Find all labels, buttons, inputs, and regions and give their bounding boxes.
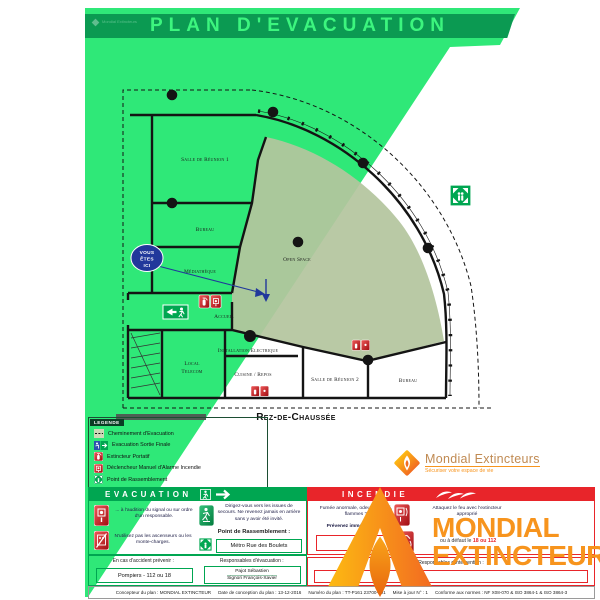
you-are-here-line1: VOUS	[140, 250, 155, 256]
footer-date: Date de conception du plan : 13-12-2016	[218, 590, 301, 595]
brand-logo: Mondial Extincteurs Sécuriser votre espa…	[392, 448, 540, 478]
extinguisher-icon	[94, 452, 103, 461]
room-label-cuisine-repos: Cuisine / Repos	[234, 372, 271, 378]
instruction-lifts: N'utilisez pas les ascenseurs ou les mon…	[111, 534, 195, 547]
assembly-point-icon	[199, 538, 212, 551]
room-label-salle-reunion-2: Salle de Réunion 2	[311, 377, 359, 383]
extinguisher-alarm-icons-accueil	[199, 295, 221, 308]
brand-flame-diamond-icon	[392, 448, 422, 478]
legend-item-rassemblement: Point de Rassemblement	[94, 475, 264, 484]
evacuation-panel: EVACUATION ... à l'audition du signal ou…	[88, 487, 307, 555]
legend-item-sortie-finale: Evacuation Sortie Finale	[94, 441, 264, 450]
stairs	[131, 333, 160, 395]
watermark-brand-text: MONDIAL EXTINCTEUR	[432, 514, 600, 570]
room-label-accueil: Accueil	[214, 314, 234, 320]
room-label-bureau-gauche: Bureau	[196, 227, 215, 233]
room-label-local-telecom-2: Telecom	[181, 369, 202, 375]
assembly-point-icon	[94, 475, 103, 484]
watermark-line2: EXTINCTEUR	[432, 542, 600, 570]
evacuation-responsables: Responsables d'évacuation : Pajot Sébast…	[198, 556, 307, 585]
legend-item-extincteur: Extincteur Portatif	[94, 452, 264, 461]
room-label-bureau-droit: Bureau	[399, 378, 418, 384]
exit-sign-icon	[163, 305, 188, 319]
dashed-path-icon	[94, 429, 104, 438]
evacuation-title: EVACUATION	[89, 490, 192, 499]
no-elevator-icon	[94, 531, 109, 550]
assembly-point-icon	[450, 185, 471, 206]
room-label-installation-electrique: Installation Electrique	[218, 348, 279, 354]
you-are-here-line3: ICI	[143, 263, 150, 269]
open-space-zone	[232, 137, 444, 361]
accident-value: Pompiers - 112 ou 18	[96, 568, 193, 583]
legend-item-cheminement: Cheminement d'Evacuation	[94, 429, 264, 438]
exit-running-man-icon	[200, 489, 246, 500]
legend-item-declencheur: Déclencheur Manuel d'Alarme Incendie	[94, 464, 264, 473]
room-label-salle-reunion-1: Salle de Réunion 1	[181, 157, 229, 163]
evacuation-contacts-panel: En cas d'accident prévenir : Pompiers - …	[88, 555, 307, 586]
responsables-evacuation-values: Pajot Sébastien Signori François-Xavier	[204, 566, 301, 584]
evacuation-plan-poster: Mondial Extincteurs PLAN D'EVACUATION	[0, 0, 600, 600]
responsables-evacuation-label: Responsables d'évacuation :	[198, 558, 307, 564]
watermark-flame-icon	[326, 487, 434, 597]
alarm-button-icon	[94, 505, 109, 526]
exit-sign-icon	[94, 441, 108, 450]
brand-name: Mondial Extincteurs	[425, 452, 540, 466]
legend-title: LEGENDE	[90, 419, 124, 426]
assembly-point-value: Métro Rue des Boulets	[216, 539, 302, 553]
instruction-signal: ... à l'audition du signal ou sur ordre …	[111, 508, 197, 521]
room-label-local-telecom: Local	[184, 361, 200, 367]
accident-label: En cas d'accident prévenir :	[89, 558, 198, 564]
legend: LEGENDE Cheminement d'Evacuation Evacuat…	[88, 417, 268, 489]
brand-tagline: Sécuriser votre espace de vie	[425, 466, 540, 474]
accident-contact: En cas d'accident prévenir : Pompiers - …	[89, 556, 198, 585]
flames-icon	[434, 489, 482, 500]
assembly-point-label: Point de Rassemblement :	[205, 529, 303, 535]
footer-normes: Conforme aux normes : NF X08-070 & ISO 3…	[435, 590, 567, 595]
responsable-2: Signori François-Xavier	[227, 575, 277, 582]
manual-alarm-icon	[94, 464, 103, 473]
room-label-open-space: Open Space	[283, 257, 311, 263]
exit-direction-icon	[199, 505, 214, 526]
evacuation-header: EVACUATION	[89, 488, 306, 501]
instruction-exits: Dirigez-vous vers les issues de secours.…	[217, 504, 301, 523]
footer-concepteur: Concepteur du plan : MONDIAL EXTINCTEUR	[116, 590, 211, 595]
watermark-line1: MONDIAL	[432, 514, 600, 542]
extinguisher-alarm-icons-bas	[251, 386, 269, 396]
